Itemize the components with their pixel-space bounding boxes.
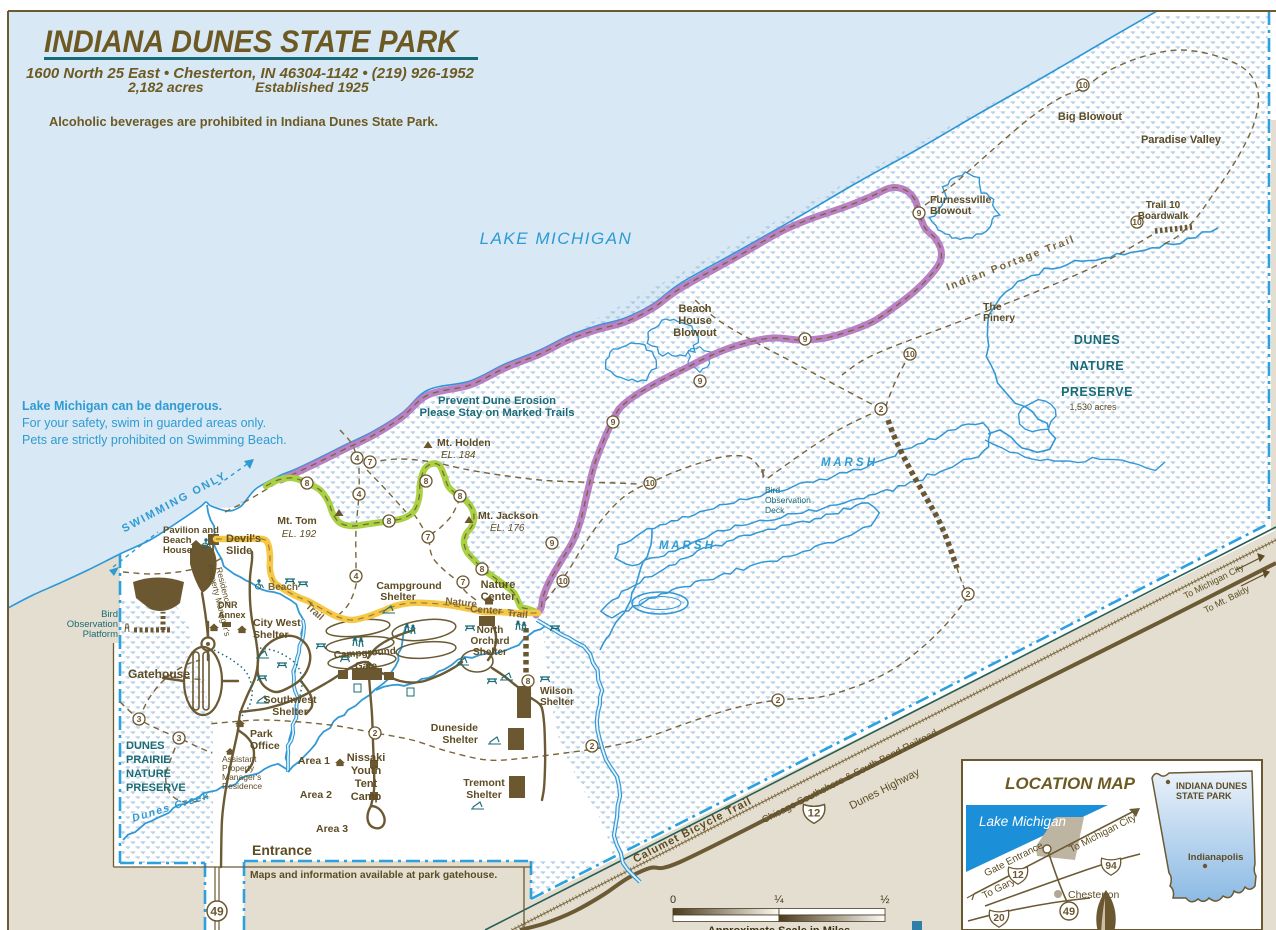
svg-text:Park: Park: [250, 728, 273, 740]
svg-text:8: 8: [526, 676, 531, 686]
svg-text:Center: Center: [470, 604, 502, 617]
svg-text:Observation: Observation: [765, 495, 811, 505]
svg-text:Shelter: Shelter: [473, 647, 507, 658]
svg-text:Office: Office: [250, 740, 280, 752]
svg-text:Pets are strictly prohibited o: Pets are strictly prohibited on Swimming…: [22, 433, 287, 447]
svg-text:Devil's: Devil's: [226, 533, 261, 545]
svg-text:Alcoholic beverages are prohib: Alcoholic beverages are prohibited in In…: [49, 114, 438, 129]
svg-text:20: 20: [993, 913, 1005, 924]
svg-text:Mt. Tom: Mt. Tom: [277, 515, 316, 527]
svg-text:9: 9: [698, 376, 703, 386]
svg-text:PRESERVE: PRESERVE: [1061, 385, 1133, 399]
svg-text:LOCATION MAP: LOCATION MAP: [1005, 774, 1136, 793]
svg-text:Blowout: Blowout: [930, 205, 972, 217]
svg-text:Southwest: Southwest: [263, 694, 317, 706]
svg-text:Duneside: Duneside: [431, 722, 478, 734]
svg-text:Tent: Tent: [355, 778, 378, 790]
svg-text:2: 2: [879, 404, 884, 414]
svg-text:Slide: Slide: [226, 545, 252, 557]
svg-text:Area 1: Area 1: [298, 755, 330, 767]
svg-text:Wilson: Wilson: [540, 686, 573, 697]
svg-text:Established 1925: Established 1925: [255, 79, 369, 95]
svg-text:49: 49: [1063, 906, 1075, 918]
svg-text:LAKE MICHIGAN: LAKE MICHIGAN: [480, 229, 633, 248]
svg-text:7: 7: [368, 457, 373, 467]
svg-text:Residence: Residence: [222, 781, 262, 791]
svg-text:10: 10: [558, 576, 568, 586]
svg-text:2: 2: [590, 741, 595, 751]
svg-text:1,530 acres: 1,530 acres: [1069, 402, 1117, 412]
svg-text:EL. 176: EL. 176: [490, 523, 525, 534]
svg-text:STATE PARK: STATE PARK: [1176, 791, 1232, 801]
svg-text:8: 8: [480, 564, 485, 574]
svg-text:Shelter: Shelter: [442, 734, 478, 746]
svg-text:M A R S H: M A R S H: [659, 540, 714, 552]
svg-text:Boardwalk: Boardwalk: [1138, 211, 1189, 222]
svg-text:Center: Center: [481, 591, 517, 603]
svg-text:½: ½: [880, 894, 889, 906]
svg-text:Indianapolis: Indianapolis: [1188, 852, 1243, 863]
svg-text:NATURE: NATURE: [1070, 359, 1124, 373]
svg-text:4: 4: [354, 571, 359, 581]
svg-text:2,182 acres: 2,182 acres: [127, 79, 204, 95]
svg-text:¼: ¼: [774, 894, 784, 906]
svg-text:Shelter: Shelter: [466, 789, 502, 801]
svg-text:9: 9: [803, 334, 808, 344]
svg-text:Shelter: Shelter: [540, 697, 574, 708]
svg-text:DUNES: DUNES: [1074, 333, 1120, 347]
svg-text:0: 0: [670, 894, 676, 906]
svg-text:Paradise Valley: Paradise Valley: [1141, 134, 1222, 146]
svg-text:Deck: Deck: [765, 505, 785, 515]
svg-text:Mt. Jackson: Mt. Jackson: [478, 510, 538, 522]
svg-text:4: 4: [357, 489, 362, 499]
svg-text:7: 7: [426, 532, 431, 542]
svg-text:Nature: Nature: [481, 579, 516, 591]
svg-text:Big Blowout: Big Blowout: [1058, 111, 1122, 123]
svg-text:4: 4: [355, 453, 360, 463]
svg-text:12: 12: [808, 807, 821, 819]
svg-text:Platform: Platform: [83, 629, 118, 640]
svg-text:Lake Michigan: Lake Michigan: [979, 814, 1066, 829]
svg-text:Shelter: Shelter: [253, 629, 289, 641]
svg-text:9: 9: [550, 538, 555, 548]
svg-text:House: House: [678, 315, 712, 327]
svg-text:NATURE: NATURE: [126, 768, 171, 780]
svg-text:Tremont: Tremont: [463, 777, 505, 789]
svg-text:Shelter: Shelter: [380, 591, 416, 603]
svg-text:House: House: [163, 545, 192, 556]
svg-text:Please Stay on Marked Trails: Please Stay on Marked Trails: [419, 407, 574, 419]
svg-text:94: 94: [1105, 861, 1117, 872]
svg-text:49: 49: [210, 905, 224, 919]
svg-text:10: 10: [1078, 80, 1088, 90]
svg-text:Approximate Scale in Miles: Approximate Scale in Miles: [708, 925, 850, 930]
svg-text:2: 2: [373, 728, 378, 738]
svg-text:2: 2: [776, 695, 781, 705]
svg-text:Trail 10: Trail 10: [1146, 200, 1181, 211]
svg-text:1600 North 25 East • Chesterto: 1600 North 25 East • Chesterton, IN 4630…: [26, 65, 475, 82]
svg-text:PRESERVE: PRESERVE: [126, 782, 186, 794]
svg-text:10: 10: [645, 478, 655, 488]
svg-text:Chesterton: Chesterton: [1068, 889, 1120, 901]
svg-text:Mt. Holden: Mt. Holden: [437, 437, 491, 449]
svg-text:Area 2: Area 2: [300, 789, 332, 801]
svg-text:Maps and information available: Maps and information available at park g…: [250, 870, 497, 881]
svg-text:9: 9: [611, 417, 616, 427]
svg-text:8: 8: [424, 476, 429, 486]
svg-text:PRAIRIE: PRAIRIE: [126, 754, 171, 766]
svg-text:3: 3: [177, 733, 182, 743]
svg-text:EL. 184: EL. 184: [441, 450, 476, 461]
svg-text:Camp: Camp: [351, 791, 382, 803]
svg-text:INDIANA DUNES: INDIANA DUNES: [1176, 781, 1247, 791]
svg-text:12: 12: [1012, 870, 1024, 881]
svg-text:Shelter: Shelter: [272, 706, 308, 718]
svg-text:Beach: Beach: [268, 582, 298, 593]
svg-text:Blowout: Blowout: [673, 327, 717, 339]
svg-text:Entrance: Entrance: [252, 842, 312, 858]
svg-text:8: 8: [387, 516, 392, 526]
svg-text:Lake Michigan can be dangerous: Lake Michigan can be dangerous.: [22, 399, 222, 413]
svg-text:Bird: Bird: [765, 485, 780, 495]
svg-text:M A R S H: M A R S H: [821, 457, 876, 469]
svg-text:9: 9: [917, 208, 922, 218]
svg-text:City West: City West: [253, 617, 301, 629]
svg-text:For your safety, swim in guard: For your safety, swim in guarded areas o…: [22, 416, 266, 430]
svg-text:7: 7: [461, 577, 466, 587]
svg-text:Trail: Trail: [507, 608, 529, 621]
svg-text:Beach: Beach: [678, 303, 711, 315]
svg-text:8: 8: [458, 491, 463, 501]
svg-text:Gate: Gate: [355, 661, 378, 672]
svg-text:Youth: Youth: [351, 765, 382, 777]
svg-text:10: 10: [905, 349, 915, 359]
svg-text:North: North: [477, 625, 504, 636]
svg-text:DUNES: DUNES: [126, 740, 165, 752]
svg-text:2: 2: [966, 589, 971, 599]
svg-text:Pinery: Pinery: [983, 312, 1015, 324]
svg-text:INDIANA DUNES STATE PARK: INDIANA DUNES STATE PARK: [44, 23, 460, 59]
svg-text:Gatehouse: Gatehouse: [128, 667, 190, 681]
svg-text:Orchard: Orchard: [471, 636, 510, 647]
svg-text:3: 3: [137, 714, 142, 724]
svg-text:EL. 192: EL. 192: [282, 529, 317, 540]
svg-text:Nissaki: Nissaki: [347, 752, 386, 764]
svg-text:8: 8: [305, 478, 310, 488]
svg-text:Area 3: Area 3: [316, 823, 348, 835]
svg-text:Prevent Dune Erosion: Prevent Dune Erosion: [438, 395, 556, 407]
